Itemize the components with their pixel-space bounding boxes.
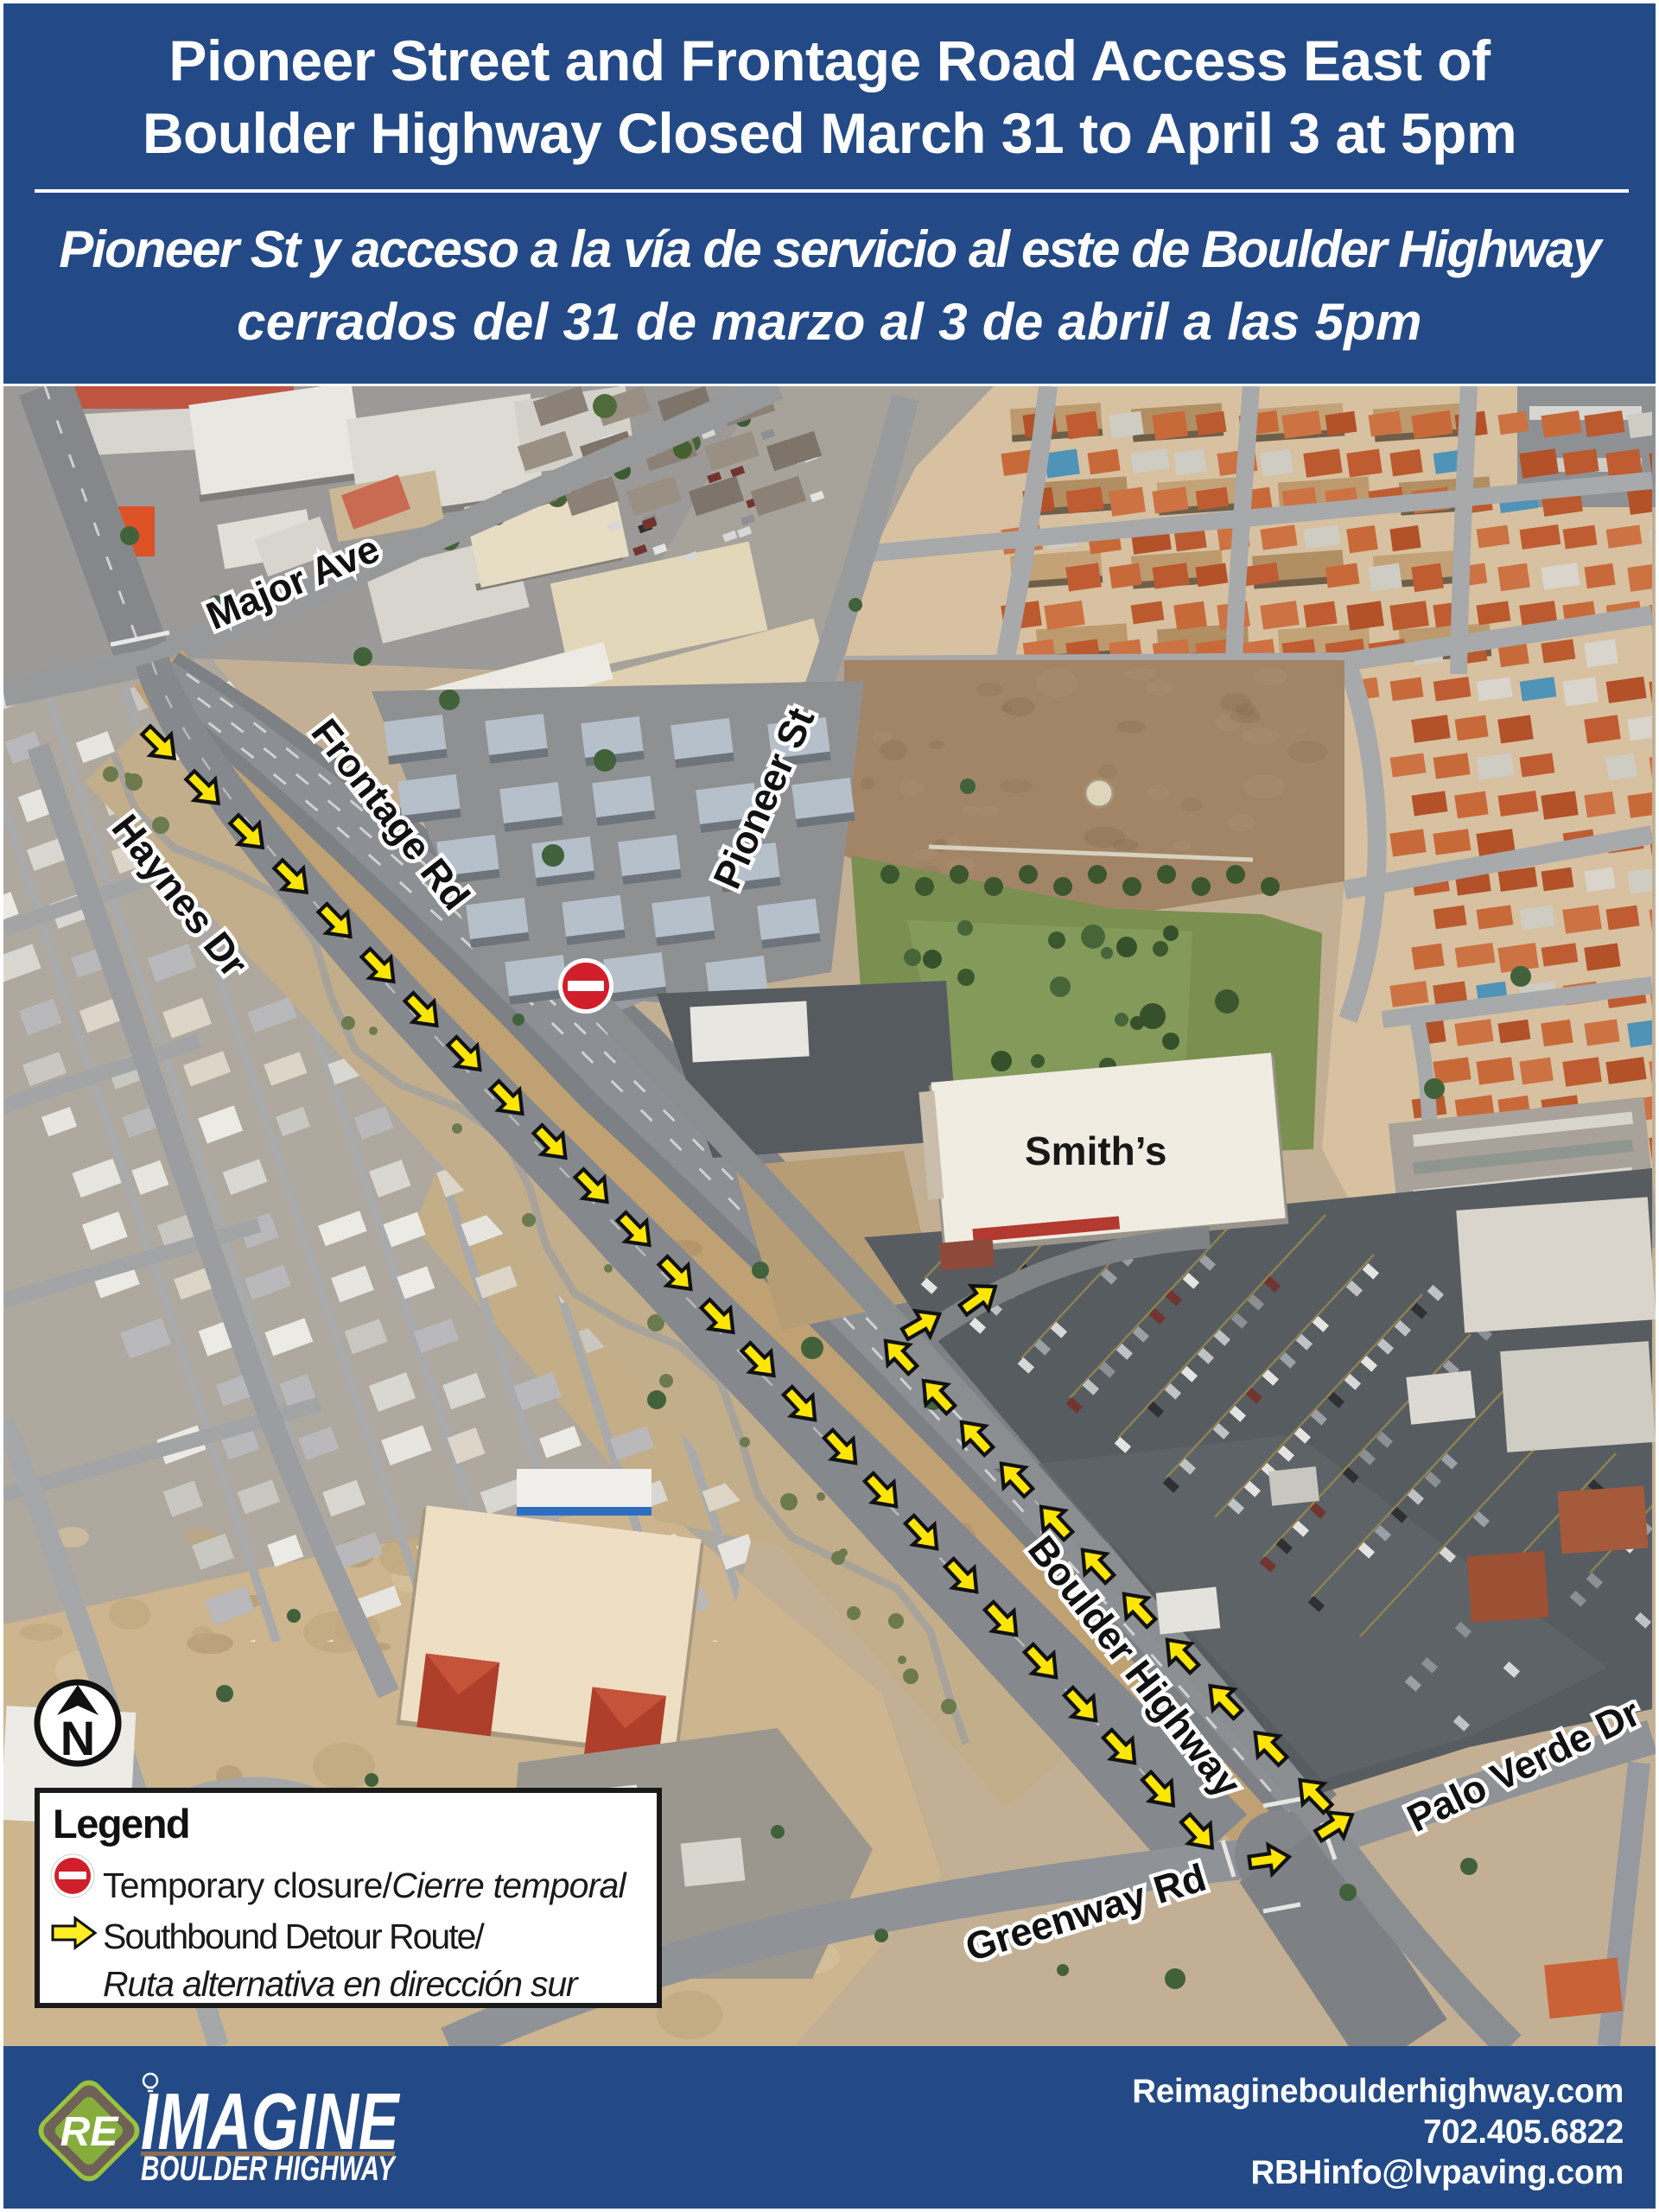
svg-text:Temporary closure/Cierre tempo: Temporary closure/Cierre temporal <box>103 1866 627 1905</box>
svg-text:RE: RE <box>60 2109 120 2155</box>
svg-text:N: N <box>60 1711 95 1765</box>
svg-text:Legend: Legend <box>53 1801 189 1847</box>
svg-text:BOULDER HIGHWAY: BOULDER HIGHWAY <box>141 2150 397 2188</box>
svg-text:Ruta alternativa en dirección: Ruta alternativa en dirección sur <box>103 1964 580 2004</box>
svg-text:Southbound Detour Route/: Southbound Detour Route/ <box>103 1916 485 1956</box>
svg-text:Smith’s: Smith’s <box>1025 1128 1166 1173</box>
